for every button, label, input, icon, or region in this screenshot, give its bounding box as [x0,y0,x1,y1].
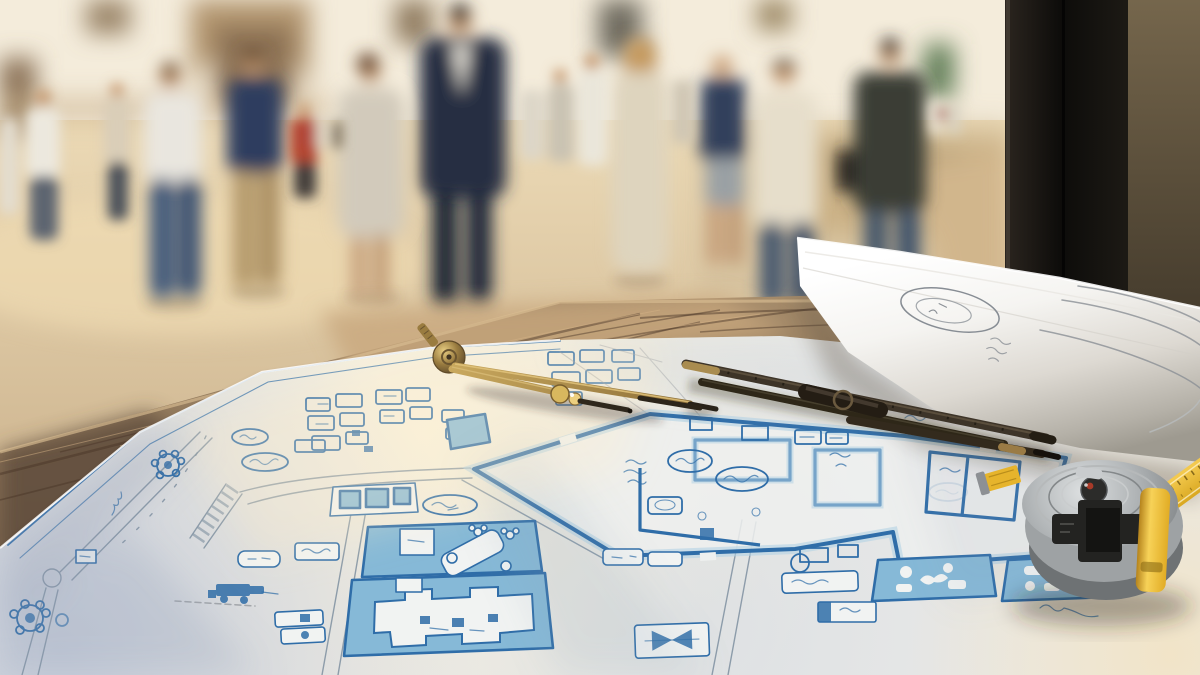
pedestrian [26,90,60,240]
green-door [924,44,954,98]
pedestrian [227,48,283,288]
pedestrian [0,118,18,214]
window [395,0,433,44]
scene-canvas [0,0,1200,675]
brass-collar [1002,447,1022,451]
tape-yellow-clip [1135,487,1170,592]
brown-wall [1128,0,1200,344]
tape-hub [1081,477,1107,503]
window [86,0,130,34]
hub-red-dot [1087,483,1094,490]
pedestrian [144,62,202,298]
window [757,0,791,30]
compass-joint [551,385,569,403]
photograph-blueprint-on-table [0,0,1200,675]
bag [836,150,856,192]
